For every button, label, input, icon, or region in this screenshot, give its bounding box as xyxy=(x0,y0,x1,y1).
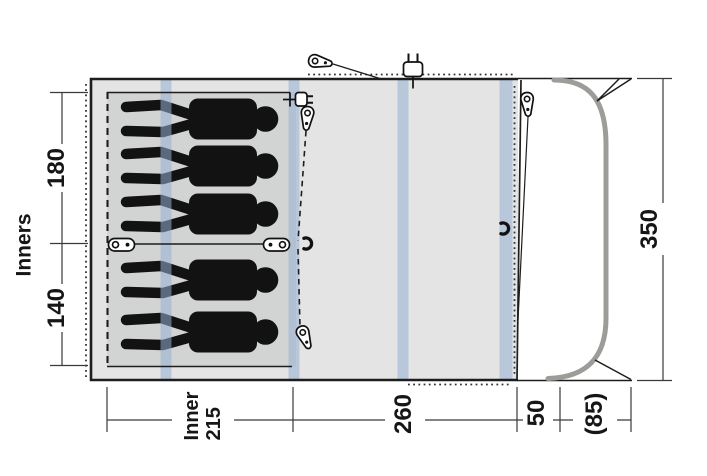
dim-porch-extension: (85) xyxy=(583,393,607,436)
air-pole-stripe xyxy=(500,79,513,380)
air-pole-stripe xyxy=(161,79,172,380)
guy-line xyxy=(333,64,383,80)
air-pole-stripe xyxy=(398,79,409,380)
dim-inner-length: Inner 215 xyxy=(181,392,225,441)
door-flap-line-bottom xyxy=(595,360,631,380)
toggle-clip-icon xyxy=(264,239,290,252)
tent-floorplan: Inners 180 140 Inner 215 260 50 (85) 350 xyxy=(0,0,707,476)
dim-inner-length-value: 215 xyxy=(203,392,225,441)
dim-inner-width-top: 180 xyxy=(45,148,69,188)
door-flap-line-top xyxy=(597,79,631,101)
dim-inner-length-label: Inner xyxy=(181,392,203,441)
toggle-clip-icon xyxy=(109,239,135,252)
tent-peg-icon xyxy=(520,92,534,117)
dim-living-length: 260 xyxy=(392,394,416,434)
inners-title: Inners xyxy=(14,213,35,276)
canopy-pole xyxy=(548,80,606,379)
tent-peg-icon xyxy=(308,54,334,70)
dim-inner-width-bottom: 140 xyxy=(45,288,69,328)
dim-front-section: 50 xyxy=(525,400,549,427)
dim-total-width: 350 xyxy=(638,209,662,249)
